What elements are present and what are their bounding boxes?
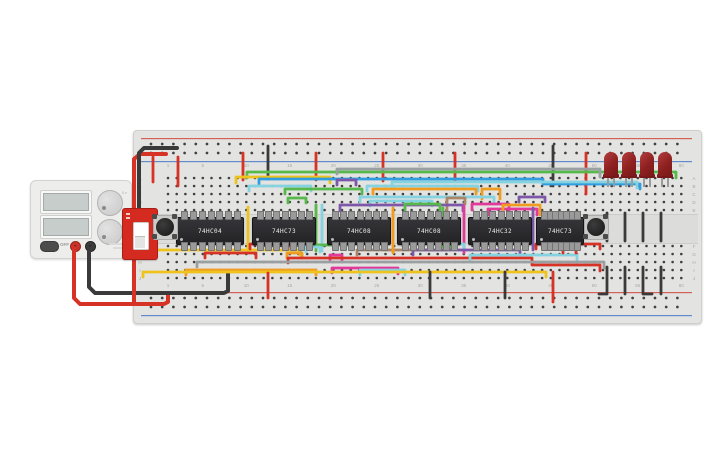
ic-chip[interactable]: 74HC08 <box>397 217 461 245</box>
ic-pin <box>208 242 215 251</box>
ic-pin <box>365 242 372 251</box>
ic-pin <box>225 242 232 251</box>
ic-pin <box>574 242 581 251</box>
ic-pin <box>574 211 581 220</box>
ic-pin <box>234 242 241 251</box>
ic-pin <box>381 242 388 251</box>
ic-pin <box>348 211 355 220</box>
brand-mark <box>109 243 123 245</box>
ic-pin <box>273 242 280 251</box>
ic-pin <box>489 211 496 220</box>
voltage-knob[interactable] <box>97 190 123 216</box>
ic-pin <box>381 211 388 220</box>
led-leg <box>643 178 645 187</box>
ic-pin <box>306 242 313 251</box>
ic-pin <box>234 211 241 220</box>
ic-pin <box>443 211 450 220</box>
ic-label: 74HC73 <box>537 218 583 244</box>
ic-pin <box>418 211 425 220</box>
ic-pin <box>373 242 380 251</box>
led-red[interactable] <box>604 152 618 186</box>
current-lcd <box>43 218 89 236</box>
ic-label: 74HC73 <box>253 218 315 244</box>
pushbutton-cap[interactable] <box>156 218 174 236</box>
led-red[interactable] <box>640 152 654 186</box>
ic-pin <box>225 211 232 220</box>
ic-pin <box>306 211 313 220</box>
led-leg <box>613 178 615 187</box>
led-body <box>640 152 654 176</box>
ic-chip[interactable]: 74HC73 <box>252 217 316 245</box>
ic-pin <box>435 211 442 220</box>
led-leg <box>649 178 651 187</box>
power-supply[interactable]: 0 v 30 v 0 a 2 a OFF <box>30 180 132 259</box>
pushbutton-leg <box>172 214 177 219</box>
ic-pin <box>208 211 215 220</box>
ic-pin <box>506 211 513 220</box>
switch-mark <box>126 213 130 215</box>
ic-pin <box>473 211 480 220</box>
ic-pin <box>290 211 297 220</box>
power-state-label: OFF <box>60 242 69 247</box>
ic-label: 74HC32 <box>469 218 531 244</box>
ic-pin <box>427 211 434 220</box>
ic-pin <box>290 242 297 251</box>
ic-pin <box>190 242 197 251</box>
ic-pin <box>443 242 450 251</box>
ic-pin <box>257 211 264 220</box>
ic-pin <box>190 211 197 220</box>
ic-chip[interactable]: 74HC08 <box>327 217 391 245</box>
current-display <box>40 215 92 239</box>
ic-pin <box>481 211 488 220</box>
ic-pin <box>514 211 521 220</box>
ic-chip[interactable]: 74HC32 <box>468 217 532 245</box>
pin1-marker <box>472 238 475 241</box>
pushbutton-leg <box>152 214 157 219</box>
ic-pin <box>473 242 480 251</box>
current-knob[interactable] <box>97 219 123 245</box>
ic-pin <box>522 242 529 251</box>
ic-pin <box>265 242 272 251</box>
slide-switch-thumb[interactable] <box>135 236 145 248</box>
ic-pin <box>340 242 347 251</box>
ic-chip[interactable]: 74HC73 <box>536 217 584 245</box>
led-red[interactable] <box>658 152 672 186</box>
negative-terminal[interactable] <box>85 241 96 252</box>
ic-pin <box>481 242 488 251</box>
led-red[interactable] <box>622 152 636 186</box>
led-leg <box>607 178 609 187</box>
ic-pin <box>199 242 206 251</box>
ic-pin <box>340 211 347 220</box>
pushbutton[interactable] <box>583 214 608 239</box>
pushbutton-leg <box>172 234 177 239</box>
ic-pin <box>498 242 505 251</box>
ic-pin <box>273 211 280 220</box>
ic-pin <box>451 242 458 251</box>
ic-pin <box>332 242 339 251</box>
ic-pin <box>216 242 223 251</box>
led-body <box>604 152 618 176</box>
ic-pin <box>298 211 305 220</box>
ic-pin <box>489 242 496 251</box>
pushbutton-leg <box>603 234 608 239</box>
ic-pin <box>498 211 505 220</box>
voltage-lcd <box>43 193 89 211</box>
led-leg <box>661 178 663 187</box>
led-body <box>658 152 672 176</box>
led-leg <box>667 178 669 187</box>
ic-pin <box>282 242 289 251</box>
pushbutton[interactable] <box>152 214 177 239</box>
ic-label: 74HC08 <box>328 218 390 244</box>
ic-label: 74HC08 <box>398 218 460 244</box>
ic-pin <box>451 211 458 220</box>
ic-pin <box>265 211 272 220</box>
ic-pin <box>435 242 442 251</box>
ic-pin <box>332 211 339 220</box>
ic-pin <box>357 211 364 220</box>
ic-pin <box>357 242 364 251</box>
ic-pin <box>427 242 434 251</box>
ic-pin <box>410 211 417 220</box>
ic-pin <box>348 242 355 251</box>
pin1-marker <box>540 238 543 241</box>
ic-pin <box>199 211 206 220</box>
led-leg <box>625 178 627 187</box>
ic-pin <box>418 242 425 251</box>
circuit-canvas: 0 v 30 v 0 a 2 a OFF 1155101015152020252… <box>0 0 725 453</box>
knob-indicator <box>102 206 106 210</box>
pushbutton-cap[interactable] <box>587 218 605 236</box>
ic-pin <box>181 211 188 220</box>
pushbutton-leg <box>583 234 588 239</box>
power-toggle-button[interactable] <box>40 241 59 252</box>
ic-pin <box>410 242 417 251</box>
ic-pin <box>365 211 372 220</box>
ic-label: 74HC04 <box>177 218 243 244</box>
ic-pin <box>402 242 409 251</box>
pin1-marker <box>180 238 183 241</box>
ic-pin <box>282 211 289 220</box>
ic-pin <box>257 242 264 251</box>
pushbutton-leg <box>603 214 608 219</box>
voltage-knob-min-label: 0 v <box>122 191 127 195</box>
pin1-marker <box>256 238 259 241</box>
slide-switch-track <box>133 222 149 250</box>
knob-indicator <box>102 235 106 239</box>
ic-pin <box>216 211 223 220</box>
voltage-display <box>40 190 92 214</box>
pin1-marker <box>331 238 334 241</box>
positive-terminal[interactable] <box>70 241 81 252</box>
ic-pin <box>522 211 529 220</box>
ic-pin <box>506 242 513 251</box>
ic-pin <box>514 242 521 251</box>
pin1-marker <box>401 238 404 241</box>
pushbutton-leg <box>152 234 157 239</box>
pushbutton-leg <box>583 214 588 219</box>
ic-pin <box>402 211 409 220</box>
ic-pin <box>373 211 380 220</box>
led-body <box>622 152 636 176</box>
ic-pin <box>181 242 188 251</box>
ic-pin <box>298 242 305 251</box>
led-leg <box>631 178 633 187</box>
ic-chip[interactable]: 74HC04 <box>176 217 244 245</box>
switch-mark <box>126 217 130 219</box>
